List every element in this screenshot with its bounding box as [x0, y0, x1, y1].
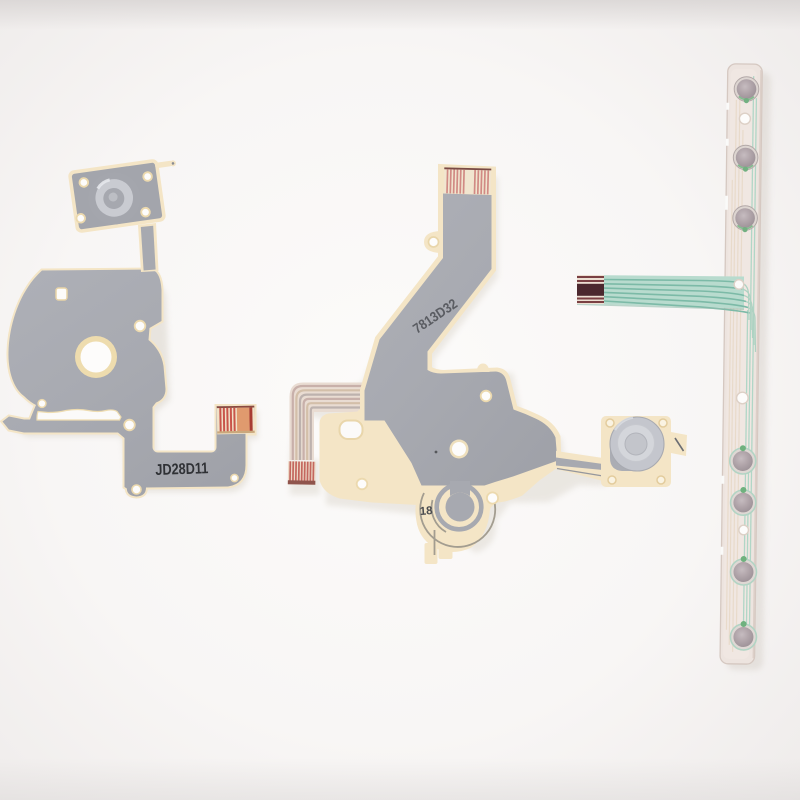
svg-text:18: 18: [419, 505, 433, 518]
svg-text:JD28D11: JD28D11: [155, 460, 209, 479]
